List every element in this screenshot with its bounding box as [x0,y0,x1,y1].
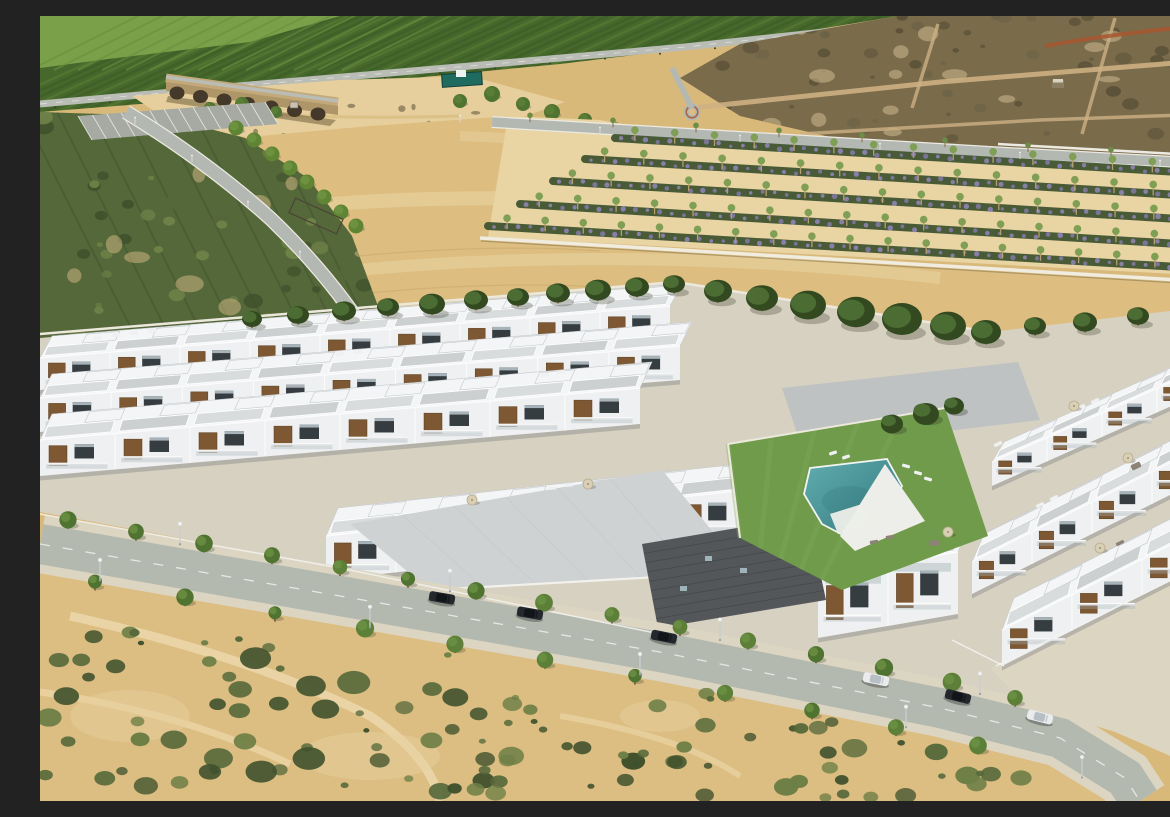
scrub-bush [370,753,390,767]
highway-pole [54,106,56,108]
pine-canopy-light [508,289,523,301]
lavender-flowers [1155,214,1161,220]
scrub-bush [199,764,221,780]
lavender-flowers [674,165,677,168]
scrub-sand-patch [893,45,908,58]
lavender-flowers [680,139,684,143]
scrub-bush [131,716,145,726]
olive-tree [312,241,329,254]
scrub-bush [825,717,838,727]
lavender-flowers [974,181,979,186]
light-pole-head [459,115,461,117]
lavender-flowers [915,248,919,252]
scrub-bush [420,733,442,749]
plantation-tree [535,192,543,200]
lavender-flowers [794,242,798,246]
plantation-tree [685,176,693,184]
scrub-bush [980,44,985,48]
lamp-base [1081,776,1083,778]
lavender-flowers [1119,262,1124,267]
scrub-bush [744,733,756,742]
scrub-bush [953,48,959,53]
lavender-flowers [1142,240,1148,246]
scrub-bush [502,697,522,711]
window-reflection [570,362,588,365]
pine-canopy-light [243,312,257,323]
balcony-glass [346,438,408,443]
lavender-flowers [868,199,872,203]
wood-slat-panel [896,574,913,608]
olive-tree [216,220,227,228]
lavender-flowers [903,176,907,180]
scrub-bush [1010,770,1031,785]
window-reflection [428,373,446,376]
lavender-flowers [890,248,894,252]
balcony-glass [1161,394,1170,399]
scrub-bush [445,724,460,735]
scrub-bush [676,741,692,752]
lavender-flowers [1096,210,1101,215]
highway-pole [604,58,606,60]
scrub-bush [499,754,516,766]
lavender-flowers [818,244,821,247]
plantation-tree [1151,230,1159,238]
lavender-flowers [1072,209,1075,212]
pine-canopy-light [931,314,956,334]
scrub-bush [479,739,486,744]
lavender-flowers [1082,163,1086,167]
window-reflection [357,379,375,382]
window-reflection [375,418,395,421]
aerial-photo-frame: Aerial view of a modern white residentia… [40,16,1170,801]
highway-pole [439,72,441,74]
scrub-bush [809,721,828,735]
olive-tree [59,170,76,183]
scrub-bush [794,723,809,733]
lavender-flowers [657,209,662,214]
lavender-flowers [984,158,989,163]
lavender-flowers [757,241,762,246]
lavender-flowers [1047,256,1051,260]
lavender-flowers [900,153,903,156]
lavender-flowers [1010,233,1014,237]
olive-tree [335,270,351,282]
plantation-tree [1112,227,1120,235]
scrub-bush [234,733,257,749]
park-tree-highlight [301,176,310,185]
lavender-flowers [949,228,954,233]
sand-gap [286,177,298,191]
lavender-flowers [706,213,710,217]
parasol-pole [1099,547,1101,549]
window-reflection [212,350,230,353]
lavender-flowers [1107,239,1111,243]
lavender-flowers [745,239,750,244]
lavender-flowers [1034,235,1038,239]
scrub-bush [1122,98,1138,110]
scrub-bush [201,640,208,645]
scrub-bush [909,60,922,69]
parasol-pole [587,483,589,485]
plantation-tree [846,235,854,243]
wood-slat-panel [124,439,142,459]
lavender-flowers [682,213,686,217]
wood-slat-panel [499,407,517,427]
lamp-head [978,672,982,676]
street-tree-highlight [129,525,138,534]
scrub-bush [1044,131,1051,136]
scrub-bush [715,61,729,71]
lavender-flowers [749,191,753,195]
scrub-bush [648,699,666,712]
lavender-flowers [1131,165,1136,170]
plantation-tree [1113,251,1121,259]
wood-slat-panel [1159,471,1170,489]
street-tree-highlight [741,634,750,643]
scrub-bush [974,104,987,113]
sand-gap [175,275,203,292]
lavender-flowers [700,188,705,193]
lavender-flowers [589,229,593,233]
plantation-tree [910,143,918,151]
lavender-flowers [806,171,810,175]
lavender-flowers [656,140,660,144]
plantation-tree [884,237,892,245]
scrub-bush [704,763,713,769]
courtyard-pine-light [945,398,958,408]
lavender-flowers [652,184,657,189]
balcony-glass [1157,481,1170,486]
lavender-flowers [985,231,990,236]
plantation-tree [732,228,740,236]
street-tree-highlight [197,536,207,546]
window-reflection [492,327,510,330]
scrub-bush [1115,52,1132,64]
olive-tree [138,245,147,252]
window-reflection [1104,582,1122,585]
plantation-tree [870,141,878,149]
lavender-flowers [900,224,904,228]
scrub-bush [539,726,548,732]
window-reflection [1017,453,1031,456]
scrub-sand-patch [1098,76,1120,82]
lavender-flowers [613,159,618,164]
plantation-tree [762,181,770,189]
lavender-flowers [891,176,895,180]
lavender-flowers [1035,256,1039,260]
olive-tree [122,200,134,209]
sand-gap [106,235,123,253]
scrub-bush [512,695,519,700]
lavender-flowers [1024,208,1029,213]
plantation-tree [999,244,1007,252]
scrub-bush [116,767,127,775]
lavender-flowers [633,207,638,212]
lavender-flowers [1022,234,1026,238]
scrub-bush [573,741,591,754]
lavender-flowers [1011,185,1015,189]
street-tree-highlight [876,660,886,670]
street-tree-highlight [469,583,479,593]
light-pole-head [191,155,193,157]
lavender-flowers [797,194,801,198]
scrub-sand-patch [883,106,899,115]
lavender-flowers [540,227,544,231]
street-tree-highlight [944,674,954,684]
scrub-bush [872,119,878,123]
plantation-tree [840,186,848,194]
lavender-flowers [1060,209,1064,213]
lavender-flowers [637,232,641,236]
scrub-bush [134,777,158,794]
wood-slat-panel [1099,501,1113,519]
plantation-tree [640,150,648,158]
lavender-flowers [875,222,881,228]
pine-canopy-light [626,278,643,291]
lavender-flowers [743,217,747,221]
scrub-bush [442,688,468,706]
window-reflection [422,333,440,336]
lavender-flowers [862,150,867,155]
scrub-bush [395,701,413,714]
scrub-bush [341,782,349,788]
lavender-flowers [1119,167,1123,171]
road-tree [693,123,699,129]
street-tree-highlight [629,670,636,677]
light-pole-head [247,201,249,203]
pine-canopy-light [378,299,393,311]
scrub-sand-patch [809,69,835,83]
window-reflection [72,362,90,365]
highway-pole [659,53,661,55]
plantation-tree [1035,223,1043,231]
olive-tree [97,171,109,180]
lavender-flowers [1119,190,1124,195]
plantation-tree [875,164,883,172]
plantation-tree [879,188,887,196]
lavender-flowers [866,176,871,181]
lavender-flowers [1083,188,1088,193]
scrub-bush [976,771,984,777]
wood-slat-panel [979,561,993,579]
scrub-bush [228,681,251,697]
scrub-bush [276,665,285,671]
plantation-tree [1151,253,1159,261]
lavender-flowers [865,247,871,253]
parasol-pole [471,499,473,501]
lavender-flowers [1095,237,1099,241]
lavender-flowers [964,204,969,209]
lavender-flowers [492,225,496,229]
street-tree-highlight [269,607,276,614]
lavender-flowers [998,182,1003,187]
lavender-flowers [612,232,617,237]
lavender-flowers [939,251,943,255]
plantation-tree [950,146,958,154]
plantation-tree [922,239,930,247]
lavender-flowers [854,172,859,177]
lavender-flowers [1132,262,1136,266]
balcony-glass [894,605,951,610]
window-reflection [632,315,650,318]
pine-canopy-light [420,295,438,309]
plantation-tree [1149,158,1157,166]
highway-pole [494,67,496,69]
scrub-bush [429,783,452,800]
lavender-flowers [778,219,783,224]
pine-canopy-light [1025,318,1040,330]
street-tree-highlight [536,595,546,605]
scrub-bush [1089,57,1094,60]
lavender-flowers [1010,255,1015,260]
plantation-tree [671,129,679,137]
scrub-bush [49,653,69,667]
lavender-flowers [716,141,721,146]
scrub-bush [129,629,139,636]
plantation-tree [631,126,639,134]
pine-canopy-light [791,293,816,313]
plantation-tree [1034,198,1042,206]
lamp-base [179,543,181,545]
plantation-tree [917,191,925,199]
lavender-flowers [736,191,741,196]
window-reflection [1120,491,1136,494]
lavender-flowers [789,147,794,152]
lavender-flowers [516,224,521,229]
riverbed-bush [471,111,480,115]
highway-pole [549,62,551,64]
olive-tree [95,211,107,220]
lavender-flowers [722,239,726,243]
scrub-bush [312,700,339,719]
lavender-flowers [697,165,702,170]
light-pole-head [739,135,741,137]
scrub-bush [587,784,594,789]
plantation-tree [1111,202,1119,210]
lavender-flowers [936,155,940,159]
pine-canopy-light [883,306,911,328]
road-tree [1108,147,1114,153]
lavender-flowers [1155,262,1160,267]
lavender-flowers [864,223,869,228]
window-reflection [499,367,517,370]
lavender-flowers [928,202,933,207]
scrub-bush [946,113,951,117]
window-reflection [73,402,91,405]
lamp-head [1080,755,1084,759]
lavender-flowers [1108,261,1112,265]
olive-tree [89,180,99,188]
plantation-tree [830,138,838,146]
street-tree-highlight [1008,691,1017,700]
scrub-bush [72,654,90,666]
scrub-bush [820,31,830,38]
lavender-flowers [818,170,822,174]
street-tree-highlight [889,720,898,729]
lavender-flowers [709,166,714,171]
lavender-flowers [1082,236,1087,241]
scrub-bush [618,751,629,759]
lavender-flowers [584,205,589,210]
lamp-head [638,652,642,656]
light-pole-head [1019,152,1021,154]
lavender-flowers [1047,184,1052,189]
olive-tree [71,231,83,240]
plantation-tree [920,216,928,224]
lavender-flowers [619,136,623,140]
olive-tree [163,217,175,226]
balcony-glass [496,425,558,430]
plantation-tree [956,193,964,201]
plantation-tree [808,232,816,240]
lavender-flowers [1120,215,1124,219]
scrub-bush [847,118,861,128]
plantation-tree [656,223,664,231]
lavender-flowers [1021,163,1025,167]
plantation-tree [694,226,702,234]
window-reflection [450,412,470,415]
lavender-flowers [1155,168,1160,173]
plantation-tree [958,218,966,226]
light-pole-head [599,127,601,129]
riverbed-bush [411,104,415,111]
window-reflection [352,339,370,342]
lamp-head [904,705,908,709]
stone-hut [290,102,298,108]
plantation-tree [766,206,774,214]
park-tree-highlight [248,134,257,143]
plantation-tree [1149,181,1157,189]
lavender-flowers [902,247,906,251]
street-tree-highlight [674,621,682,629]
street-tree-highlight [61,512,71,522]
olive-tree [160,198,177,211]
park-tree-highlight [517,98,525,106]
plantation-tree [1109,155,1117,163]
street-tree-highlight [809,647,818,656]
scrub-bush [1014,101,1022,107]
scrub-bush [235,636,243,642]
lavender-flowers [925,226,929,230]
plantation-tree [1071,176,1079,184]
balcony-glass [996,468,1041,473]
scrub-bush [371,743,382,751]
lavender-flowers [709,239,713,243]
scrub-bush [561,742,572,750]
lavender-flowers [940,203,944,207]
lavender-flowers [770,169,773,172]
window-glass [850,583,868,608]
lavender-flowers [581,179,586,184]
scrub-bush [422,682,442,696]
lavender-flowers [916,200,921,205]
lavender-flowers [730,213,735,218]
plantation-tree [1029,150,1037,158]
olive-tree [97,242,103,247]
scrub-bush [1069,18,1081,26]
scrub-bush [94,771,115,786]
plantation-tree [601,147,609,155]
street-tree-highlight [718,686,727,695]
lavender-flowers [1059,256,1063,260]
wood-slat-panel [1039,531,1053,549]
lavender-flowers [852,221,856,225]
lavender-flowers [936,227,941,232]
scrub-bush [955,767,980,785]
plantation-tree [953,169,961,177]
lavender-flowers [733,165,738,170]
lavender-flowers [661,234,665,238]
